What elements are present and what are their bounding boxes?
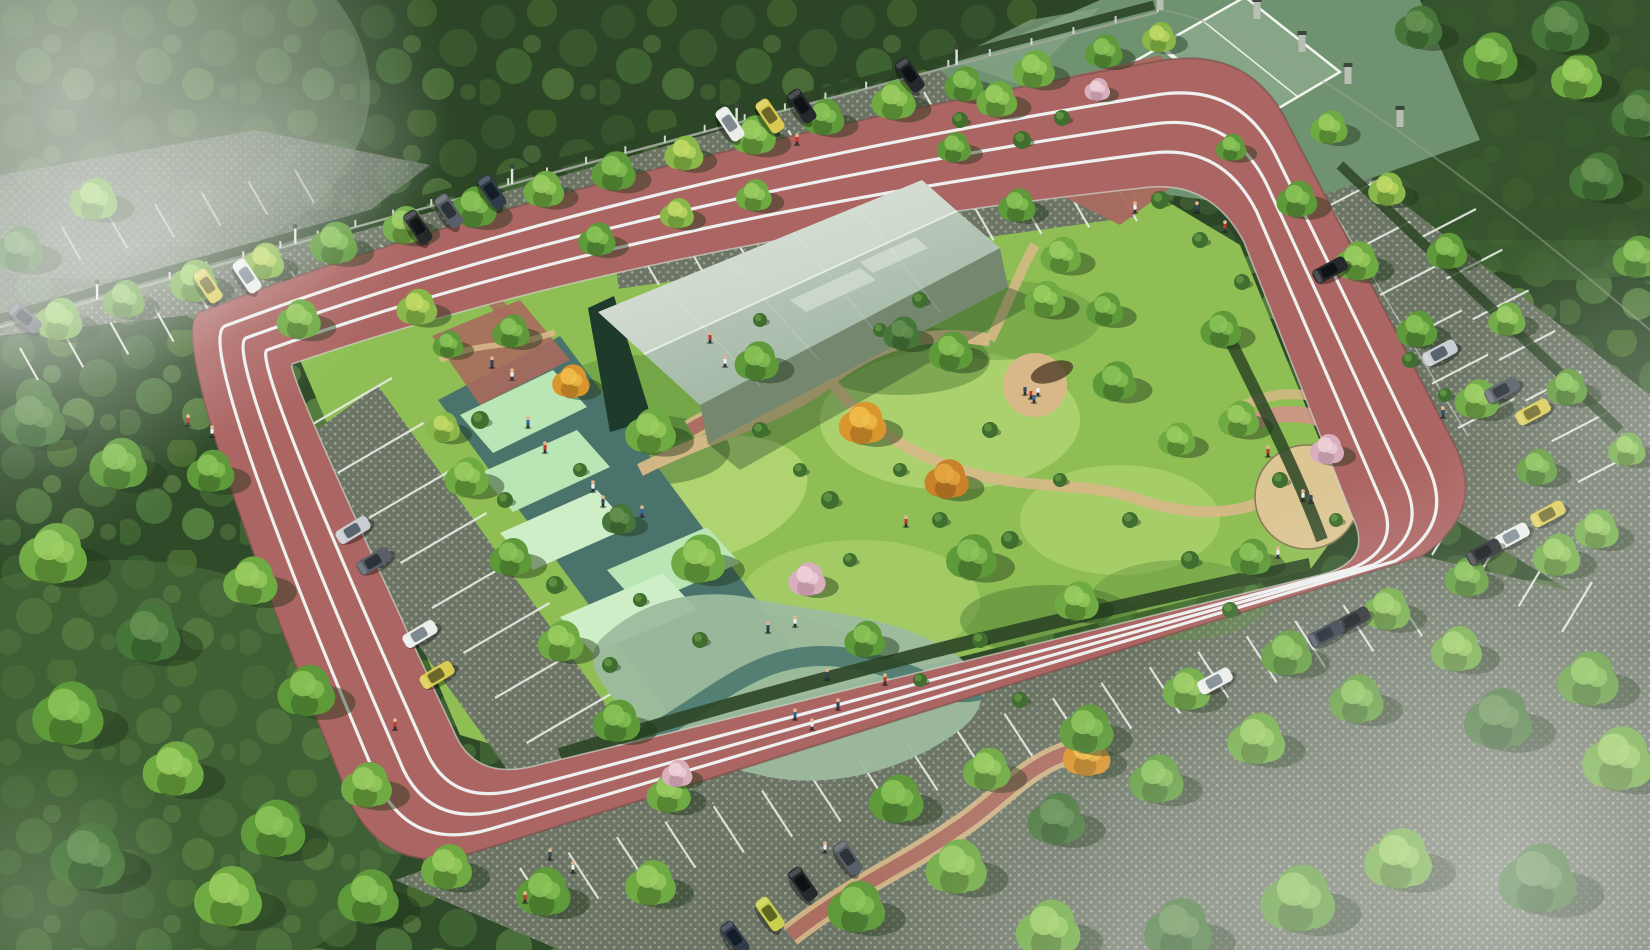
lamp-post xyxy=(955,49,957,65)
fence-picket xyxy=(1072,27,1074,34)
fence-picket xyxy=(947,60,949,67)
park-render-canvas: Aerial architectural rendering of a land… xyxy=(0,0,1650,950)
fence-picket xyxy=(507,178,509,185)
lamp-head xyxy=(734,103,739,108)
lamp-post xyxy=(511,168,513,184)
pillar-cap xyxy=(1344,63,1353,67)
fence-picket xyxy=(664,136,666,143)
stone-pillar xyxy=(1299,34,1306,52)
fence-picket xyxy=(1115,16,1117,23)
lamp-head xyxy=(954,45,959,50)
fence-picket xyxy=(865,82,867,89)
fence-picket xyxy=(1030,38,1032,45)
aerial-site-rendering: Aerial architectural rendering of a land… xyxy=(0,0,1650,950)
fence-picket xyxy=(704,125,706,132)
fence-picket xyxy=(624,146,626,153)
fence-picket xyxy=(585,157,587,164)
pillar-cap xyxy=(1396,106,1405,110)
stone-pillar xyxy=(1397,109,1404,127)
pillar-cap xyxy=(1298,31,1307,35)
lamp-head xyxy=(510,164,515,169)
fence-picket xyxy=(824,93,826,100)
pillar-cap xyxy=(1253,0,1262,2)
fence-picket xyxy=(784,103,786,110)
stone-pillar xyxy=(1345,66,1352,84)
stone-pillar xyxy=(1157,0,1164,10)
stone-pillar xyxy=(1254,1,1261,19)
fence-picket xyxy=(989,49,991,56)
